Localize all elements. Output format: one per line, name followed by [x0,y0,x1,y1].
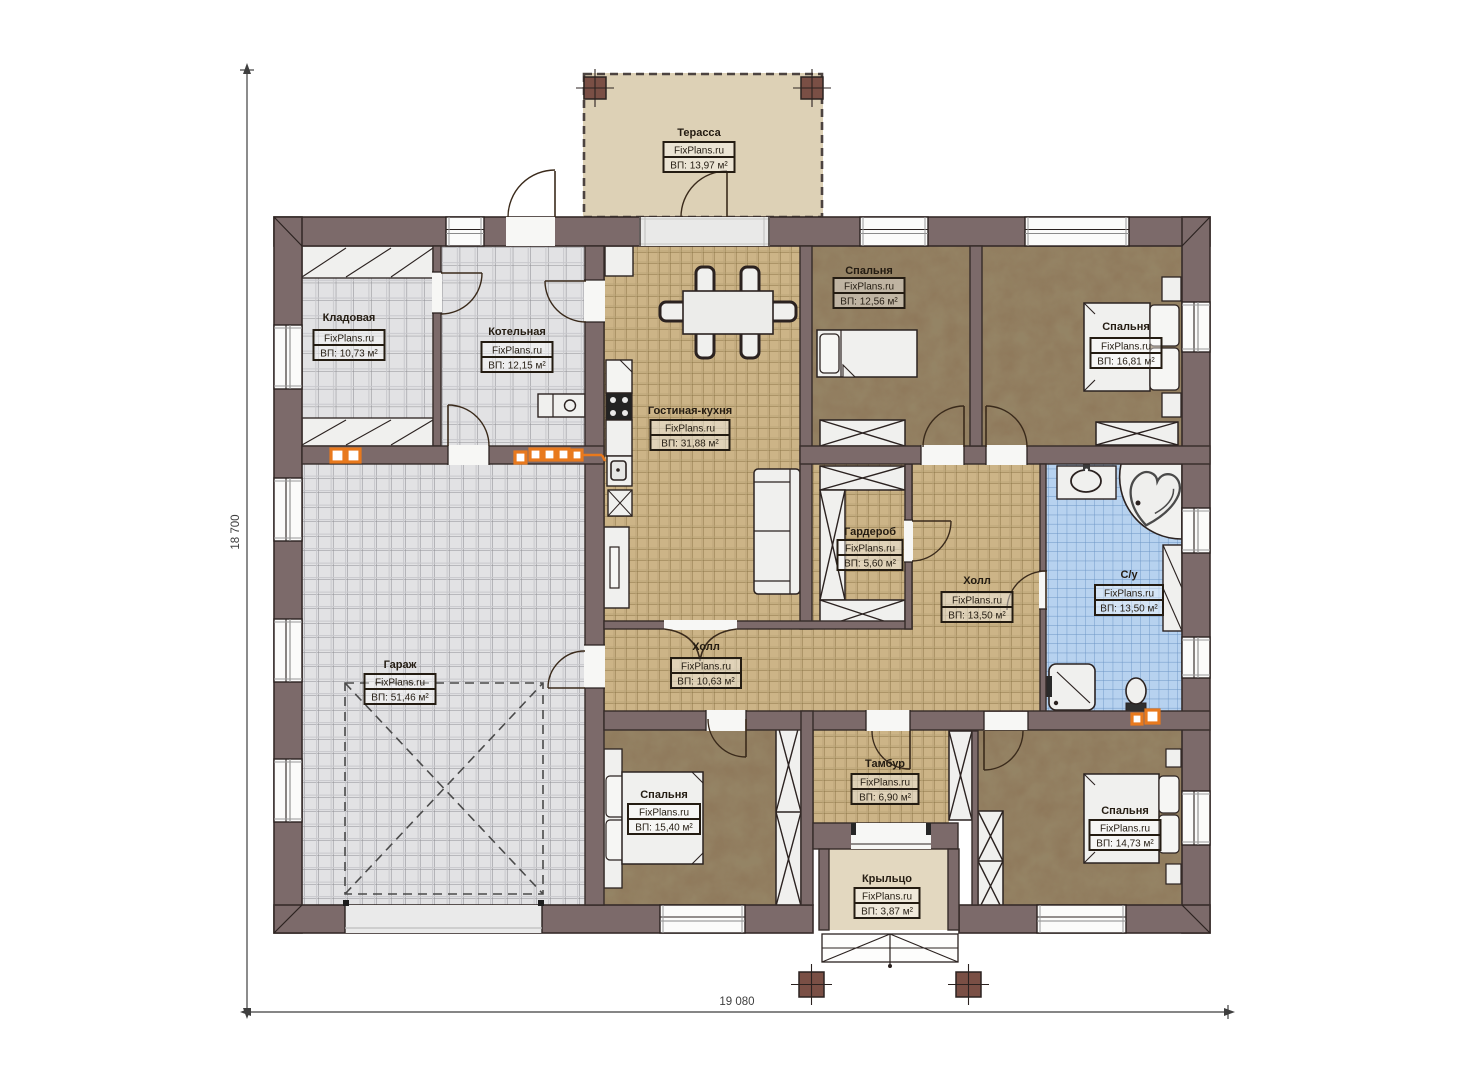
svg-text:Спальня: Спальня [845,265,893,277]
svg-text:FixPlans.ru: FixPlans.ru [324,334,374,345]
svg-text:Холл: Холл [692,641,720,653]
svg-text:Спальня: Спальня [640,789,688,801]
svg-text:ВП: 15,40 м²: ВП: 15,40 м² [635,823,693,834]
svg-text:Кладовая: Кладовая [323,312,376,324]
svg-text:ВП: 3,87 м²: ВП: 3,87 м² [861,907,914,918]
svg-text:FixPlans.ru: FixPlans.ru [844,282,894,293]
svg-text:FixPlans.ru: FixPlans.ru [665,424,715,435]
svg-text:Спальня: Спальня [1101,805,1149,817]
svg-text:ВП: 10,73 м²: ВП: 10,73 м² [320,349,378,360]
svg-text:ВП: 12,56 м²: ВП: 12,56 м² [840,297,898,308]
svg-text:FixPlans.ru: FixPlans.ru [860,778,910,789]
svg-text:FixPlans.ru: FixPlans.ru [845,544,895,555]
svg-text:ВП: 12,15 м²: ВП: 12,15 м² [488,361,546,372]
svg-text:Гараж: Гараж [384,659,417,671]
svg-text:FixPlans.ru: FixPlans.ru [681,662,731,673]
svg-text:ВП: 13,50 м²: ВП: 13,50 м² [1100,604,1158,615]
svg-text:FixPlans.ru: FixPlans.ru [1100,824,1150,835]
svg-text:ВП: 31,88 м²: ВП: 31,88 м² [661,439,719,450]
svg-text:FixPlans.ru: FixPlans.ru [1104,589,1154,600]
svg-text:Терасса: Терасса [677,127,721,139]
svg-text:18 700: 18 700 [230,514,242,549]
svg-text:FixPlans.ru: FixPlans.ru [862,892,912,903]
svg-text:ВП: 6,90 м²: ВП: 6,90 м² [859,793,912,804]
svg-text:ВП: 13,97 м²: ВП: 13,97 м² [670,161,728,172]
svg-text:FixPlans.ru: FixPlans.ru [952,596,1002,607]
svg-text:19 080: 19 080 [719,996,754,1008]
svg-text:Спальня: Спальня [1102,321,1150,333]
svg-text:Котельная: Котельная [488,326,546,338]
svg-text:С/у: С/у [1120,569,1138,581]
svg-text:FixPlans.ru: FixPlans.ru [375,678,425,689]
svg-text:FixPlans.ru: FixPlans.ru [674,146,724,157]
svg-text:FixPlans.ru: FixPlans.ru [492,346,542,357]
svg-text:ВП: 10,63 м²: ВП: 10,63 м² [677,677,735,688]
svg-text:ВП: 14,73 м²: ВП: 14,73 м² [1096,839,1154,850]
svg-text:FixPlans.ru: FixPlans.ru [1101,342,1151,353]
svg-text:ВП: 16,81 м²: ВП: 16,81 м² [1097,357,1155,368]
svg-text:Гостиная-кухня: Гостиная-кухня [648,405,732,417]
svg-text:Тамбур: Тамбур [865,758,905,770]
svg-text:ВП: 5,60 м²: ВП: 5,60 м² [844,559,897,570]
svg-text:Крыльцо: Крыльцо [862,873,912,885]
svg-text:ВП: 51,46 м²: ВП: 51,46 м² [371,693,429,704]
svg-text:FixPlans.ru: FixPlans.ru [639,808,689,819]
svg-text:Холл: Холл [963,575,991,587]
svg-text:Гардероб: Гардероб [844,526,896,538]
svg-text:ВП: 13,50 м²: ВП: 13,50 м² [948,611,1006,622]
